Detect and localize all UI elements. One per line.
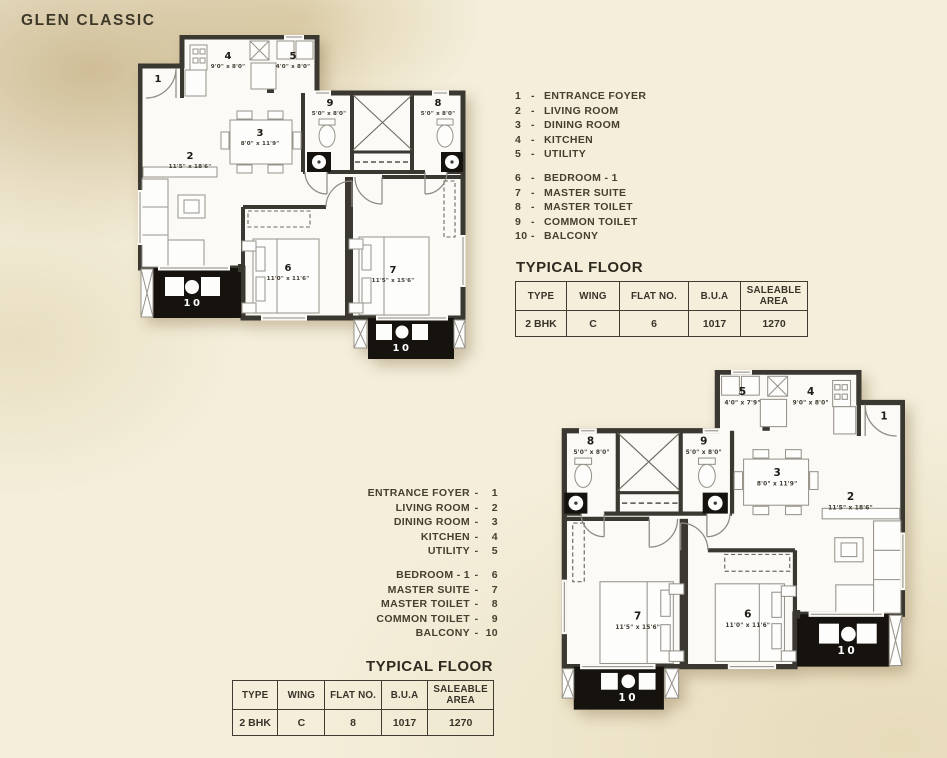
room-9-dims: 5'0" x 8'0": [686, 450, 722, 456]
legend-item-number: 6: [483, 568, 498, 583]
balcony-left-label: 10: [184, 298, 203, 309]
balcony-left: [797, 614, 902, 666]
legend-item-label: MASTER TOILET: [381, 597, 470, 612]
room-7-dims: 11'5" x 15'6": [372, 278, 415, 284]
legend-item: KITCHEN-4: [338, 530, 498, 545]
cell-saleable: 1270: [741, 311, 808, 337]
cell-bua: 1017: [381, 710, 427, 736]
legend-item-number: 7: [515, 186, 531, 201]
legend-item-separator: -: [531, 229, 544, 244]
legend-item-number: 9: [483, 612, 498, 627]
room-5-label: 5: [739, 386, 746, 398]
legend-item-number: 3: [515, 118, 531, 133]
room-4-label: 4: [225, 51, 232, 62]
legend-item: 1-ENTRANCE FOYER: [515, 89, 685, 104]
col-wing: WING: [567, 282, 620, 311]
room-8-dims: 5'0" x 8'0": [574, 450, 610, 456]
typical-floor-block-2: TYPICAL FLOOR TYPE WING FLAT NO. B.U.A S…: [232, 658, 494, 736]
legend-item-label: MASTER SUITE: [544, 186, 626, 201]
legend-item-label: LIVING ROOM: [544, 104, 618, 119]
col-wing: WING: [278, 681, 325, 710]
legend-item-separator: -: [470, 501, 483, 516]
legend-item-number: 9: [515, 215, 531, 230]
legend-item-label: COMMON TOILET: [376, 612, 470, 627]
legend-item: 5-UTILITY: [515, 147, 685, 162]
cell-type: 2 BHK: [233, 710, 278, 736]
room-9-dims: 5'0" x 8'0": [312, 111, 347, 117]
legend-item: MASTER TOILET-8: [338, 597, 498, 612]
legend-item: 9-COMMON TOILET: [515, 215, 685, 230]
floor-plan-shapes: [138, 35, 466, 359]
legend-item-number: 10: [483, 626, 498, 641]
legend-item-label: BEDROOM - 1: [396, 568, 470, 583]
room-7-label: 7: [390, 265, 397, 276]
legend-item: MASTER SUITE-7: [338, 583, 498, 598]
floor-plan-brochure-page: GLEN CLASSIC: [0, 0, 947, 758]
col-type: TYPE: [516, 282, 567, 311]
room-9-label: 9: [700, 435, 707, 447]
legend-item: 8-MASTER TOILET: [515, 200, 685, 215]
cell-wing: C: [567, 311, 620, 337]
room-4-dims: 9'0" x 8'0": [793, 401, 829, 407]
legend-item-separator: -: [470, 544, 483, 559]
room-8-label: 8: [435, 98, 442, 109]
room-5-dims: 4'0" x 7'9": [724, 401, 760, 407]
floor-table-2: TYPE WING FLAT NO. B.U.A SALEABLE AREA 2…: [232, 680, 494, 736]
balcony-bottom-label: 10: [618, 692, 638, 704]
legend-item-number: 8: [483, 597, 498, 612]
legend-item-number: 1: [483, 486, 498, 501]
legend-item-number: 4: [483, 530, 498, 545]
cell-type: 2 BHK: [516, 311, 567, 337]
page-title: GLEN CLASSIC: [21, 12, 156, 30]
legend-item-number: 5: [515, 147, 531, 162]
legend-item-label: ENTRANCE FOYER: [544, 89, 646, 104]
room-6-label: 6: [744, 608, 751, 620]
legend-item-separator: -: [470, 515, 483, 530]
legend-item: 2-LIVING ROOM: [515, 104, 685, 119]
legend-item: 10-BALCONY: [515, 229, 685, 244]
legend-item: COMMON TOILET-9: [338, 612, 498, 627]
room-6-label: 6: [285, 263, 292, 274]
col-bua: B.U.A: [381, 681, 427, 710]
legend-item-separator: -: [470, 583, 483, 598]
legend-item-separator: -: [531, 186, 544, 201]
legend-item-number: 7: [483, 583, 498, 598]
legend-item-separator: -: [470, 486, 483, 501]
legend-item-number: 2: [483, 501, 498, 516]
room-7-dims: 11'5" x 15'6": [615, 625, 660, 631]
floor-table-1: TYPE WING FLAT NO. B.U.A SALEABLE AREA 2…: [515, 281, 808, 337]
floor-plan-shapes: [562, 370, 905, 710]
legend-item-separator: -: [531, 89, 544, 104]
legend-item: 6-BEDROOM - 1: [515, 171, 685, 186]
legend-item-label: BALCONY: [544, 229, 598, 244]
legend-item: ENTRANCE FOYER-1: [338, 486, 498, 501]
legend-item-label: BALCONY: [416, 626, 470, 641]
room-1-label: 1: [880, 410, 887, 422]
legend-item-label: DINING ROOM: [544, 118, 620, 133]
balcony-right-label: 10: [837, 645, 857, 657]
room-9-label: 9: [327, 98, 334, 109]
legend-item-separator: -: [531, 200, 544, 215]
legend-item-label: MASTER SUITE: [388, 583, 470, 598]
legend-item-label: KITCHEN: [544, 133, 593, 148]
room-4-label: 4: [807, 386, 814, 398]
legend-item-separator: -: [531, 215, 544, 230]
legend-item-label: ENTRANCE FOYER: [368, 486, 470, 501]
legend-item-separator: -: [531, 133, 544, 148]
legend-item-number: 8: [515, 200, 531, 215]
legend-item-number: 4: [515, 133, 531, 148]
room-3-label: 3: [773, 467, 780, 479]
cell-wing: C: [278, 710, 325, 736]
legend-plan1: 1-ENTRANCE FOYER 2-LIVING ROOM 3-DINING …: [515, 89, 685, 244]
room-2-label: 2: [847, 491, 854, 503]
room-2-dims: 11'5" x 18'6": [169, 164, 212, 170]
col-flat-no: FLAT NO.: [620, 282, 689, 311]
col-bua: B.U.A: [689, 282, 741, 311]
legend-item-separator: -: [470, 568, 483, 583]
col-type: TYPE: [233, 681, 278, 710]
legend-item-separator: -: [470, 597, 483, 612]
legend-item-label: MASTER TOILET: [544, 200, 633, 215]
cell-saleable: 1270: [428, 710, 494, 736]
legend-item-label: BEDROOM - 1: [544, 171, 618, 186]
floor-plan-2-shapes: [562, 370, 905, 710]
legend-item: BALCONY-10: [338, 626, 498, 641]
table-row: 2 BHK C 6 1017 1270: [516, 311, 808, 337]
room-6-dims: 11'0" x 11'6": [267, 276, 310, 282]
cell-flat-no: 8: [325, 710, 381, 736]
legend-item-label: DINING ROOM: [394, 515, 470, 530]
legend-item-label: COMMON TOILET: [544, 215, 638, 230]
cell-bua: 1017: [689, 311, 741, 337]
legend-item-number: 1: [515, 89, 531, 104]
floor-plan-1: 1 4 9'0" x 8'0" 5 4'0" x 8'0" 2 11'5" x …: [138, 35, 470, 367]
room-4-dims: 9'0" x 8'0": [211, 64, 246, 70]
room-8-label: 8: [587, 435, 594, 447]
room-1-label: 1: [155, 74, 162, 85]
table-row: 2 BHK C 8 1017 1270: [233, 710, 494, 736]
legend-item-separator: -: [531, 171, 544, 186]
legend-item-separator: -: [531, 104, 544, 119]
legend-item-separator: -: [470, 530, 483, 545]
legend-item-label: UTILITY: [544, 147, 586, 162]
legend-item-label: LIVING ROOM: [396, 501, 470, 516]
room-7-label: 7: [634, 610, 641, 622]
legend-item-number: 6: [515, 171, 531, 186]
legend-item: UTILITY-5: [338, 544, 498, 559]
typical-floor-block-1: TYPICAL FLOOR TYPE WING FLAT NO. B.U.A S…: [515, 259, 808, 337]
room-8-dims: 5'0" x 8'0": [421, 111, 456, 117]
legend-item-separator: -: [470, 626, 483, 641]
legend-item: LIVING ROOM-2: [338, 501, 498, 516]
legend-item: BEDROOM - 1-6: [338, 568, 498, 583]
room-3-dims: 8'0" x 11'9": [241, 141, 280, 147]
legend-item-label: KITCHEN: [421, 530, 470, 545]
legend-item-number: 10: [515, 229, 531, 244]
typical-floor-heading: TYPICAL FLOOR: [233, 658, 493, 675]
legend-item-separator: -: [531, 118, 544, 133]
legend-item-number: 3: [483, 515, 498, 530]
room-5-label: 5: [290, 51, 297, 62]
room-2-label: 2: [187, 151, 194, 162]
room-6-dims: 11'0" x 11'6": [725, 623, 770, 629]
room-3-label: 3: [257, 128, 264, 139]
legend-item-label: UTILITY: [428, 544, 470, 559]
legend-item-number: 5: [483, 544, 498, 559]
legend-item: 3-DINING ROOM: [515, 118, 685, 133]
col-saleable: SALEABLE AREA: [428, 681, 494, 710]
legend-item: 7-MASTER SUITE: [515, 186, 685, 201]
legend-item-number: 2: [515, 104, 531, 119]
legend-item: DINING ROOM-3: [338, 515, 498, 530]
room-3-dims: 8'0" x 11'9": [757, 481, 797, 487]
col-saleable: SALEABLE AREA: [741, 282, 808, 311]
table-header-row: TYPE WING FLAT NO. B.U.A SALEABLE AREA: [516, 282, 808, 311]
typical-floor-heading: TYPICAL FLOOR: [516, 259, 808, 276]
legend-item: 4-KITCHEN: [515, 133, 685, 148]
balcony-left: [141, 268, 241, 318]
floor-plan-2: 1 4 9'0" x 8'0" 5 4'0" x 7'9" 2 11'5" x …: [557, 370, 905, 718]
room-5-dims: 4'0" x 8'0": [276, 64, 311, 70]
legend-item-separator: -: [531, 147, 544, 162]
table-header-row: TYPE WING FLAT NO. B.U.A SALEABLE AREA: [233, 681, 494, 710]
legend-item-separator: -: [470, 612, 483, 627]
col-flat-no: FLAT NO.: [325, 681, 381, 710]
legend-plan2: ENTRANCE FOYER-1 LIVING ROOM-2 DINING RO…: [338, 486, 498, 641]
room-2-dims: 11'5" x 18'6": [828, 505, 873, 511]
balcony-bottom-label: 10: [393, 343, 412, 354]
cell-flat-no: 6: [620, 311, 689, 337]
